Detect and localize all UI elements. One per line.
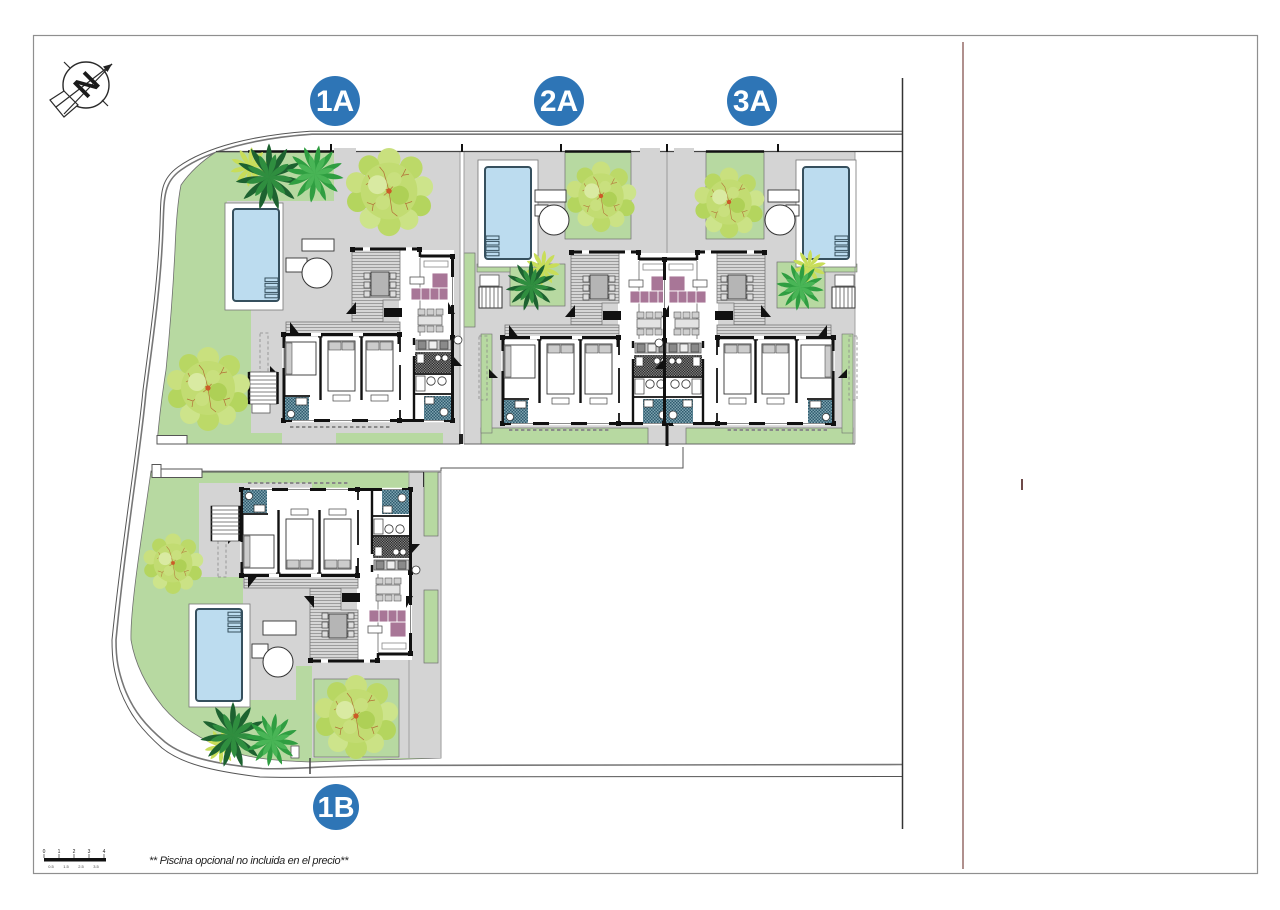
svg-text:** Piscina opcional no incluid: ** Piscina opcional no incluida en el pr… (149, 855, 349, 867)
svg-text:2A: 2A (540, 85, 578, 118)
svg-text:3: 3 (88, 849, 91, 855)
svg-text:0: 0 (43, 849, 46, 855)
svg-text:1B: 1B (317, 792, 354, 824)
svg-text:0.5: 0.5 (48, 864, 54, 869)
svg-text:2: 2 (73, 849, 76, 855)
svg-text:3A: 3A (733, 85, 771, 118)
svg-text:1.5: 1.5 (63, 864, 69, 869)
svg-text:1A: 1A (316, 85, 354, 118)
svg-text:2.5: 2.5 (78, 864, 84, 869)
svg-text:3.5: 3.5 (93, 864, 99, 869)
svg-text:1: 1 (58, 849, 61, 855)
svg-text:4: 4 (103, 849, 106, 855)
